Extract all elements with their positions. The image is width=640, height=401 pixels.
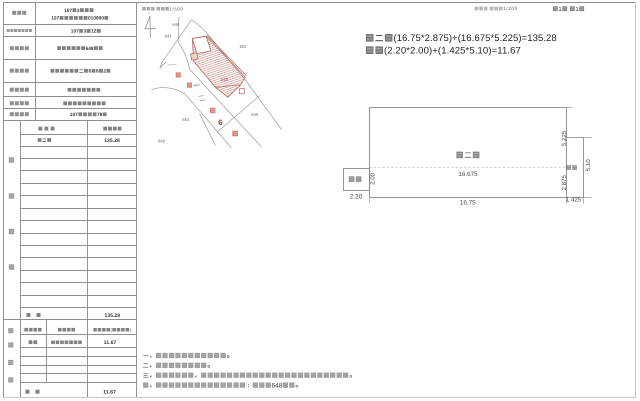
svg-text:2.20: 2.20 [350, 194, 363, 201]
svg-text:648: 648 [272, 382, 283, 389]
svg-text:8: 8 [96, 69, 99, 75]
svg-text:(: ( [111, 327, 113, 332]
svg-text:5.225: 5.225 [561, 130, 568, 146]
svg-text:3: 3 [77, 8, 80, 14]
svg-text:107: 107 [51, 16, 59, 22]
svg-text:1: 1 [558, 6, 562, 13]
svg-text:646: 646 [158, 138, 166, 143]
svg-text:647: 647 [194, 84, 200, 88]
svg-text:16.75: 16.75 [460, 200, 476, 207]
svg-text:): ) [130, 327, 132, 332]
svg-text:3: 3 [84, 29, 87, 35]
svg-text:2.875: 2.875 [561, 174, 568, 190]
svg-text:1.425: 1.425 [566, 196, 582, 203]
svg-text:(2.20*2.00)+(1.425*5.10)=11.67: (2.20*2.00)+(1.425*5.10)=11.67 [384, 46, 521, 57]
svg-text:11.67: 11.67 [104, 340, 117, 346]
svg-text:5.10: 5.10 [585, 159, 592, 172]
svg-text:652: 652 [240, 44, 248, 49]
svg-text:107: 107 [70, 112, 78, 118]
svg-text:135.28: 135.28 [105, 313, 121, 319]
svg-text:648: 648 [172, 22, 180, 27]
svg-text:1: 1 [575, 6, 579, 13]
svg-text:648: 648 [221, 77, 229, 82]
svg-text:(16.75*2.875)+(16.675*5.225)=1: (16.75*2.875)+(16.675*5.225)=135.28 [394, 33, 557, 44]
svg-text:1/500: 1/500 [169, 6, 183, 11]
svg-text:653: 653 [182, 117, 190, 122]
svg-text:6: 6 [218, 118, 223, 127]
svg-text:648: 648 [86, 46, 94, 52]
svg-text:107: 107 [64, 8, 72, 14]
svg-text:135.28: 135.28 [104, 138, 120, 144]
svg-text:107: 107 [71, 29, 79, 35]
svg-text:2.00: 2.00 [369, 172, 376, 185]
svg-text:2: 2 [103, 69, 106, 75]
svg-text:12: 12 [91, 29, 97, 35]
svg-text:649: 649 [251, 112, 259, 117]
svg-text:643: 643 [165, 33, 173, 38]
svg-text:6: 6 [89, 69, 92, 75]
svg-text:010890: 010890 [88, 16, 104, 22]
svg-text:16.675: 16.675 [458, 171, 478, 178]
svg-text:11.67: 11.67 [103, 390, 116, 396]
svg-text:1/200: 1/200 [503, 6, 518, 11]
svg-text:78: 78 [97, 112, 103, 118]
